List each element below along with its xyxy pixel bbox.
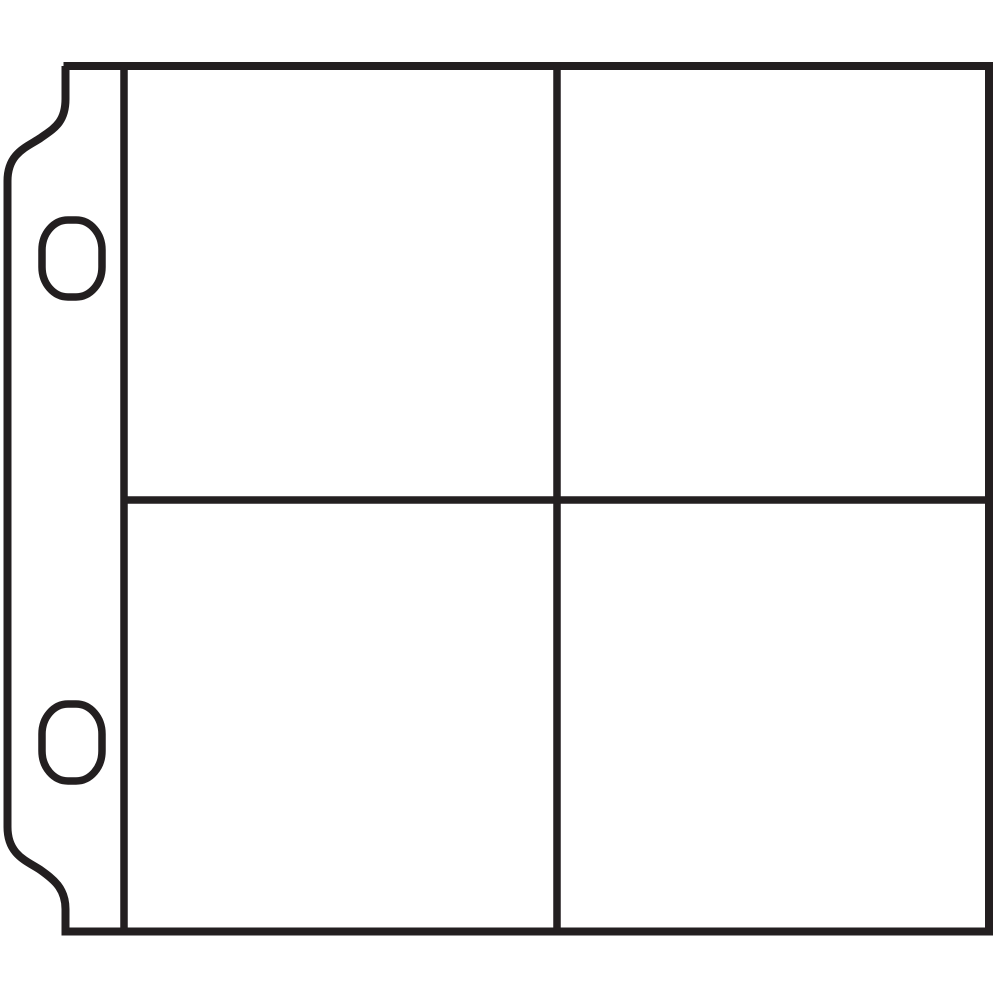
product-illustration-canvas (0, 0, 1000, 1000)
binding-hole-bottom-icon (42, 704, 102, 781)
binding-hole-top-icon (42, 220, 102, 297)
page-protector-illustration (0, 0, 1000, 1000)
